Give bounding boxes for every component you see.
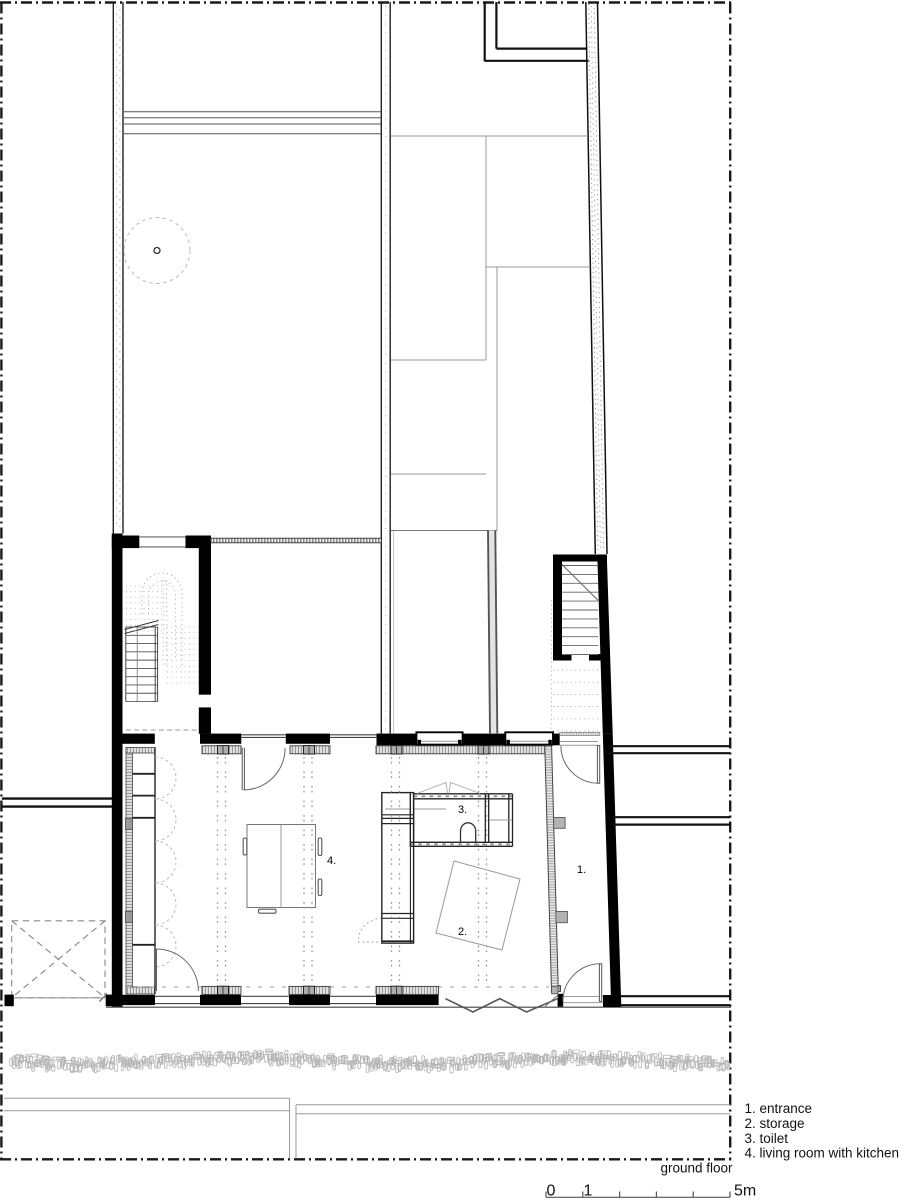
svg-text:3. toilet: 3. toilet <box>745 1131 789 1146</box>
svg-text:1.: 1. <box>577 864 586 876</box>
svg-text:2.: 2. <box>458 926 467 938</box>
svg-text:1: 1 <box>584 1183 593 1200</box>
svg-text:ground floor: ground floor <box>660 1161 733 1176</box>
svg-text:3.: 3. <box>458 804 467 816</box>
svg-text:2. storage: 2. storage <box>745 1116 805 1131</box>
svg-text:5m: 5m <box>734 1183 756 1200</box>
svg-text:1. entrance: 1. entrance <box>745 1101 813 1116</box>
svg-text:0: 0 <box>547 1183 556 1200</box>
svg-text:4.: 4. <box>327 855 336 867</box>
svg-text:4. living room with kitchen: 4. living room with kitchen <box>745 1146 900 1161</box>
